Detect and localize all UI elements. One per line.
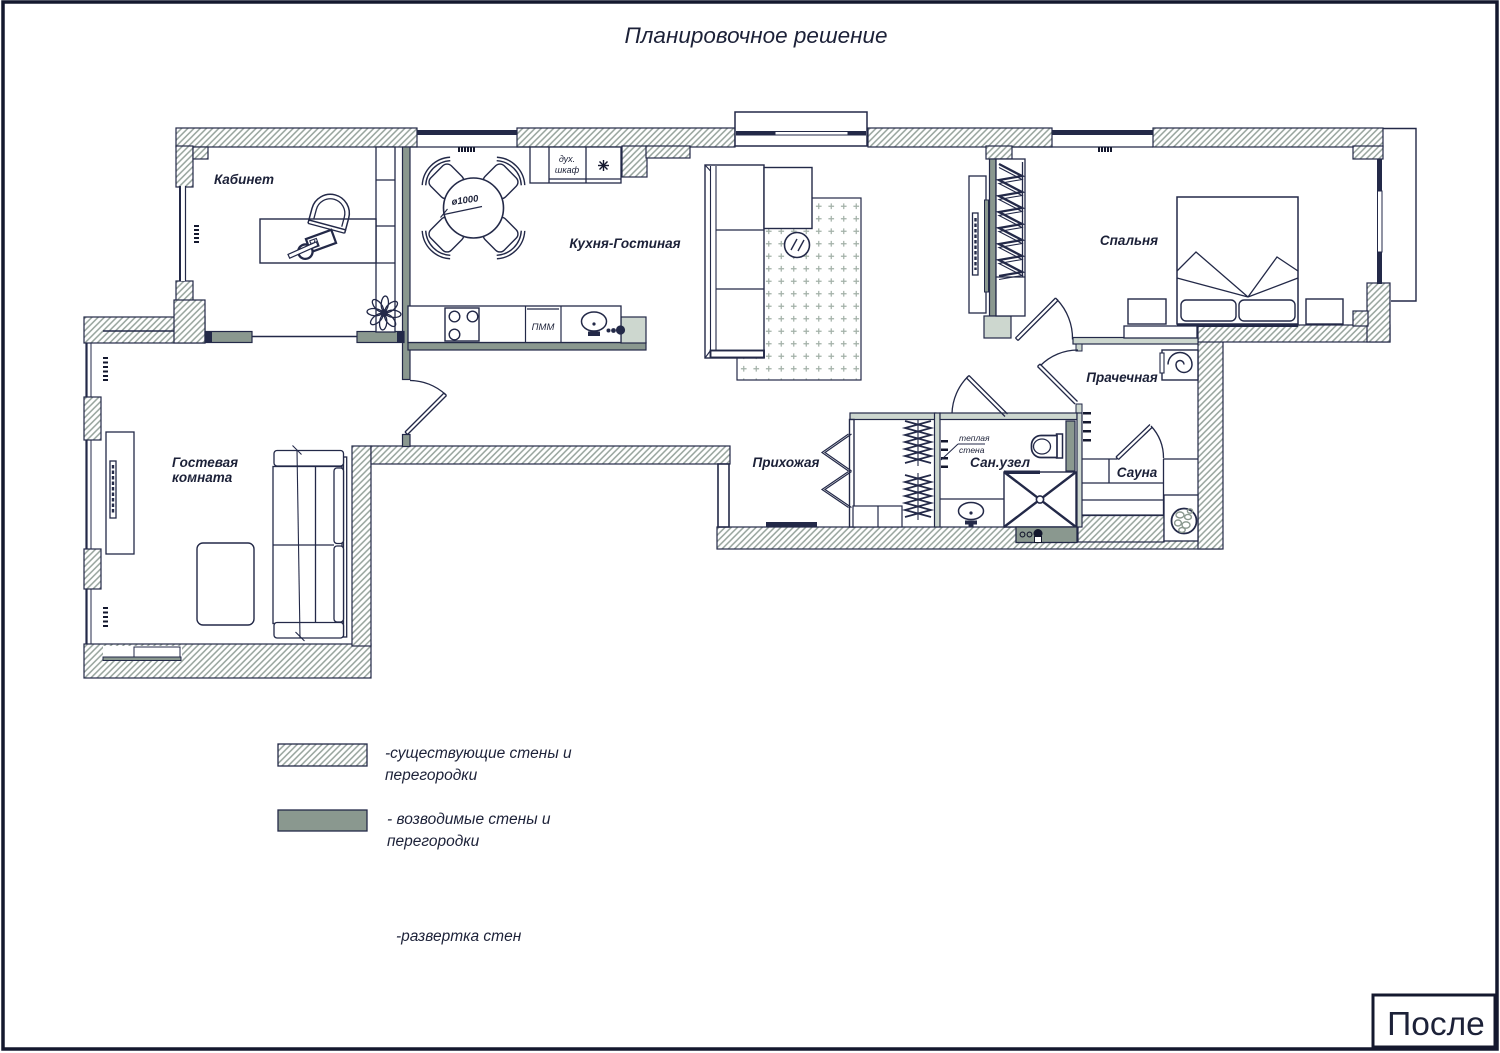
svg-text:комната: комната <box>172 470 233 485</box>
svg-text:После: После <box>1387 1006 1485 1043</box>
svg-text:Планировочное решение: Планировочное решение <box>624 23 887 48</box>
svg-text:-развертка стен: -развертка стен <box>396 928 522 945</box>
svg-text:ПММ: ПММ <box>532 322 555 333</box>
svg-text:Прихожая: Прихожая <box>752 455 819 470</box>
svg-text:Спальня: Спальня <box>1100 233 1158 248</box>
svg-text:шкаф: шкаф <box>555 165 580 175</box>
svg-text:перегородки: перегородки <box>385 767 478 784</box>
svg-text:Сауна: Сауна <box>1117 465 1158 480</box>
svg-text:- возводимые стены и: - возводимые стены и <box>387 811 551 828</box>
svg-text:Прачечная: Прачечная <box>1086 370 1158 385</box>
svg-text:-существующие стены и: -существующие стены и <box>385 745 572 762</box>
svg-text:стена: стена <box>959 445 985 455</box>
svg-text:дух.: дух. <box>559 154 575 164</box>
svg-text:Кухня-Гостиная: Кухня-Гостиная <box>569 236 680 251</box>
svg-text:перегородки: перегородки <box>387 833 480 850</box>
svg-text:Сан.узел: Сан.узел <box>970 455 1031 470</box>
svg-text:Кабинет: Кабинет <box>214 172 274 187</box>
svg-text:Гостевая: Гостевая <box>172 455 238 470</box>
svg-text:теплая: теплая <box>959 433 990 443</box>
